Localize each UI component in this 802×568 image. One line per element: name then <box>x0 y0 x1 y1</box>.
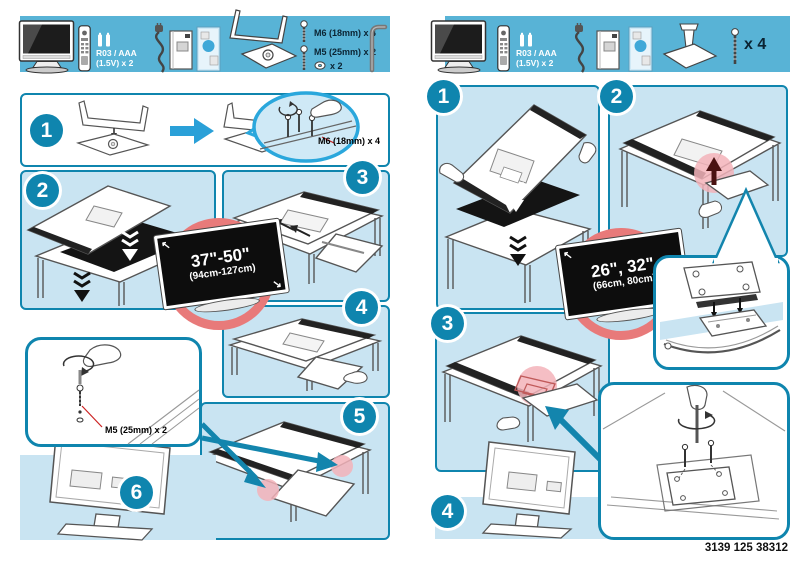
tv-icon <box>428 18 490 76</box>
right-step3-number: 3 <box>431 307 464 340</box>
battery-icon <box>97 32 111 47</box>
diagonal-arrow-icon: ↖ <box>160 238 171 252</box>
diagonal-arrow-icon: ↖ <box>562 248 573 262</box>
detail-a-pointer <box>700 186 790 262</box>
right-step4-illustration <box>455 438 605 538</box>
stand-frame-and-base-icon <box>220 8 298 86</box>
mount-plate <box>684 262 760 298</box>
washer-count-label: x 2 <box>330 61 343 71</box>
battery-label: R03 / AAA(1.5V) x 2 <box>96 48 137 68</box>
magnifier-balloon <box>254 93 358 161</box>
screw-icon <box>730 28 740 66</box>
right-arrow-icon <box>170 118 214 144</box>
battery-label-line1: R03 / AAA <box>516 48 557 58</box>
document-number: 3139 125 38312 <box>648 542 788 554</box>
size-callout-tv-frame: ↖ 37"-50" (94cm-127cm) ↘ <box>153 218 290 311</box>
right-detail-a-illustration <box>656 258 787 367</box>
right-step1-number: 1 <box>427 80 460 113</box>
mount-plate <box>667 467 735 505</box>
screw-count-label: x 4 <box>744 36 766 54</box>
size-callout-tv-screen: ↖ 37"-50" (94cm-127cm) ↘ <box>157 222 285 306</box>
allen-key-icon <box>366 22 388 72</box>
manual-booklet-icon <box>596 30 620 70</box>
right-step2-number: 2 <box>600 80 633 113</box>
left-step3-number: 3 <box>346 161 379 194</box>
hand-illustration <box>440 163 464 182</box>
stand-base <box>483 524 571 538</box>
stand-base <box>58 524 152 540</box>
hand-illustration <box>83 345 120 366</box>
left-step5-number: 5 <box>343 400 376 433</box>
left-step2-number: 2 <box>26 174 59 207</box>
hand-illustration <box>497 417 520 430</box>
remote-icon <box>78 25 91 72</box>
hand-illustration <box>579 143 596 163</box>
pedestal-stand-icon <box>660 22 718 72</box>
right-detail-b-illustration <box>601 385 787 537</box>
remote-icon <box>497 25 510 72</box>
left-step6-number: 6 <box>120 476 153 509</box>
power-cable-icon <box>141 23 169 73</box>
battery-label-line2: (1.5V) x 2 <box>516 58 553 68</box>
screws-icon <box>299 20 313 72</box>
battery-label-line2: (1.5V) x 2 <box>96 58 133 68</box>
washer-icon <box>314 61 326 70</box>
assembly-instruction-sheet: R03 / AAA(1.5V) x 2 M6 (18mm) x 4 <box>0 0 802 568</box>
left-step1-illustration <box>22 95 388 165</box>
tv-icon <box>18 18 76 76</box>
left-step4-number: 4 <box>345 291 378 324</box>
left-detail-screw-annotation: M5 (25mm) x 2 <box>105 425 167 435</box>
left-step1-screw-annotation: M6 (18mm) x 4 <box>318 136 380 146</box>
red-leader-line <box>82 406 102 427</box>
left-size-callout: ↖ 37"-50" (94cm-127cm) ↘ <box>153 218 292 320</box>
battery-icon <box>519 32 533 47</box>
power-cable-icon <box>561 23 589 73</box>
diagonal-arrow-icon: ↘ <box>272 277 283 291</box>
instruction-poster-icon <box>196 26 221 72</box>
battery-label-line1: R03 / AAA <box>96 48 137 58</box>
battery-label: R03 / AAA(1.5V) x 2 <box>516 48 557 68</box>
manual-booklet-icon <box>169 30 193 70</box>
down-arrow-icon-black <box>74 273 90 302</box>
right-step4-number: 4 <box>431 495 464 528</box>
instruction-poster-icon <box>628 26 653 72</box>
left-step1-number: 1 <box>30 114 63 147</box>
